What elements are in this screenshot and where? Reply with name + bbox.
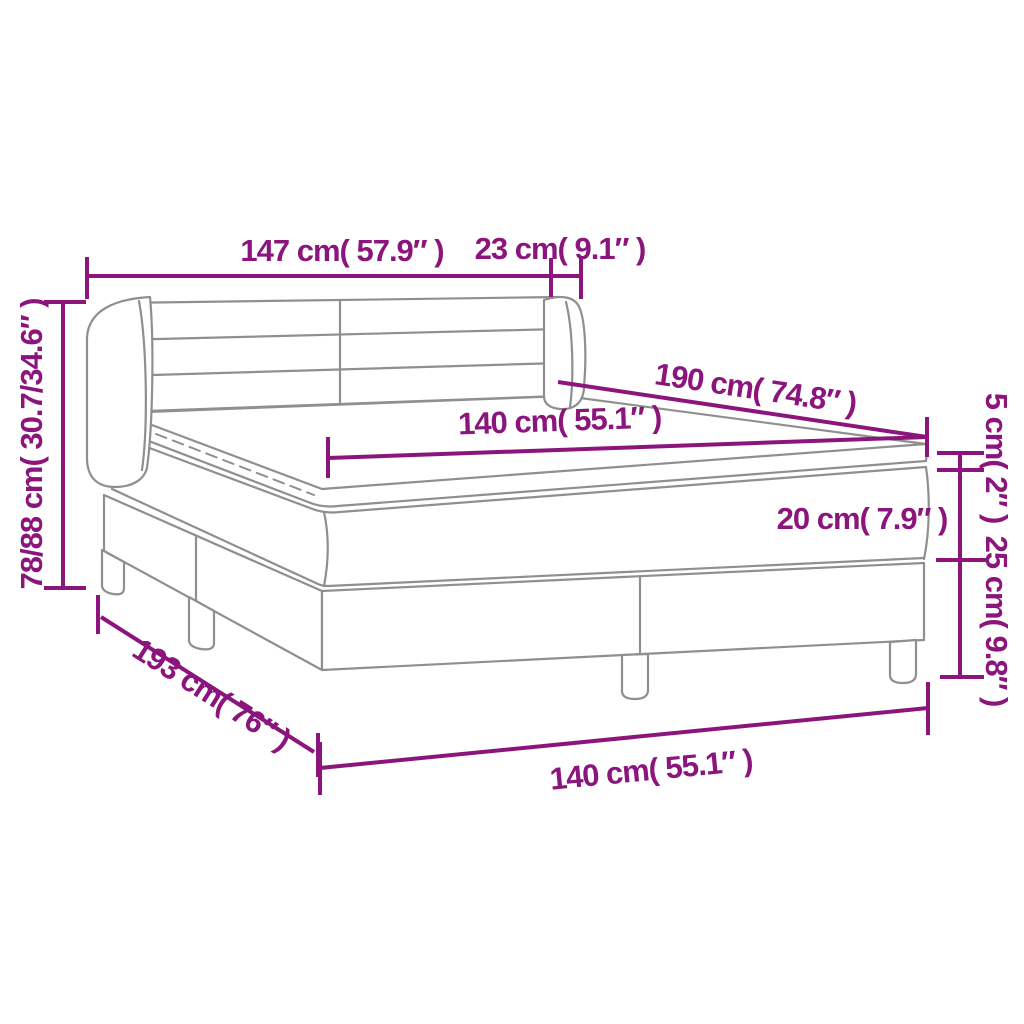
bed-drawing — [87, 297, 929, 699]
label-overall-height: 78/88 cm( 30.7/34.6″ ) — [14, 299, 49, 590]
label-mattress-width: 140 cm( 55.1″ ) — [457, 399, 661, 441]
dim-height-stack — [936, 453, 986, 677]
label-topper-thickness: 5 cm( 2″ ) — [979, 393, 1014, 524]
bed-diagram-canvas: 147 cm( 57.9″ ) 23 cm( 9.1″ ) 78/88 cm( … — [0, 0, 1024, 1024]
dim-overall-height — [44, 302, 86, 588]
product-dimension-diagram: 147 cm( 57.9″ ) 23 cm( 9.1″ ) 78/88 cm( … — [0, 0, 1024, 1024]
label-mattress-thickness: 20 cm( 7.9″ ) — [777, 501, 948, 536]
bed-leg-middle — [622, 654, 648, 699]
headboard-wing-right — [544, 297, 585, 409]
bed-leg-right — [890, 640, 916, 683]
label-base-height: 25 cm( 9.8″ ) — [979, 536, 1014, 707]
label-headboard-width: 147 cm( 57.9″ ) — [240, 233, 443, 268]
label-base-width: 140 cm( 55.1″ ) — [548, 742, 754, 796]
label-headboard-side-depth: 23 cm( 9.1″ ) — [475, 231, 646, 266]
label-base-length: 193 cm( 76″ ) — [127, 631, 297, 757]
mattress-front-corner-edge — [324, 512, 328, 586]
